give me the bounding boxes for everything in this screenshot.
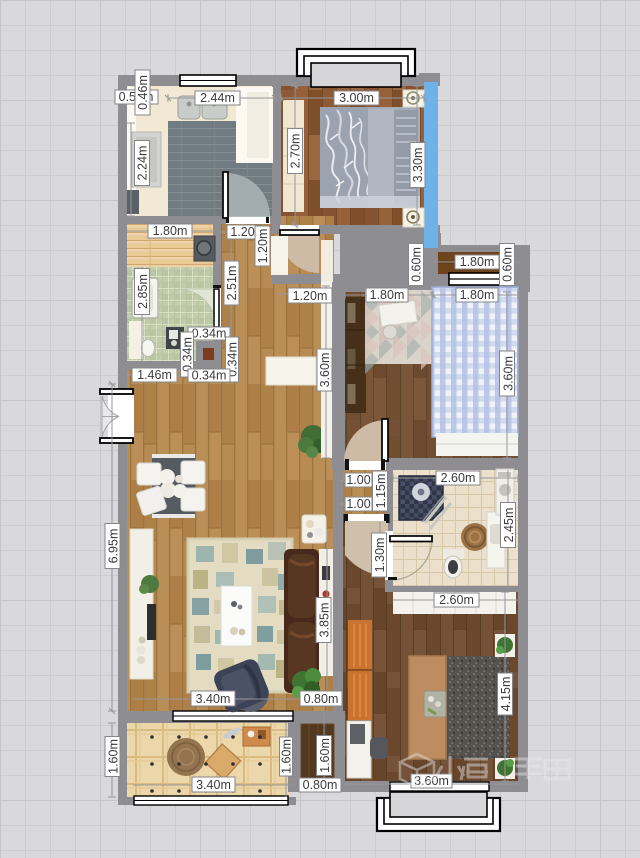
svg-text:2.44m: 2.44m (200, 91, 235, 105)
svg-text:3.30m: 3.30m (411, 148, 425, 183)
svg-text:0.46m: 0.46m (136, 75, 150, 110)
svg-text:0.80m: 0.80m (303, 778, 338, 792)
svg-text:2.24m: 2.24m (136, 146, 150, 181)
svg-text:1.80m: 1.80m (370, 288, 405, 302)
svg-text:1.60m: 1.60m (318, 738, 332, 773)
svg-text:0.34m: 0.34m (192, 327, 227, 341)
svg-text:1.60m: 1.60m (280, 739, 294, 774)
svg-text:3.40m: 3.40m (196, 778, 231, 792)
svg-text:1.20m: 1.20m (256, 229, 270, 264)
svg-text:0.60m: 0.60m (501, 247, 515, 282)
svg-text:1.15m: 1.15m (374, 474, 388, 509)
svg-text:2.85m: 2.85m (136, 274, 150, 309)
svg-text:6.95m: 6.95m (107, 529, 121, 564)
svg-text:1.00: 1.00 (346, 497, 370, 511)
svg-text:0.80m: 0.80m (304, 692, 339, 706)
svg-text:2.51m: 2.51m (225, 266, 239, 301)
svg-text:1.20m: 1.20m (293, 289, 328, 303)
svg-text:1.00: 1.00 (346, 473, 370, 487)
svg-text:1.20: 1.20 (230, 225, 254, 239)
svg-text:0.34m: 0.34m (181, 337, 195, 372)
svg-text:2.45m: 2.45m (502, 508, 516, 543)
svg-text:3.00m: 3.00m (339, 91, 374, 105)
svg-text:0.34m: 0.34m (192, 369, 227, 383)
svg-text:1.80m: 1.80m (460, 288, 495, 302)
svg-text:3.85m: 3.85m (318, 603, 332, 638)
svg-text:1.30m: 1.30m (373, 538, 387, 573)
svg-text:1.60m: 1.60m (107, 739, 121, 774)
svg-text:2.60m: 2.60m (441, 471, 476, 485)
svg-text:1.46m: 1.46m (137, 368, 172, 382)
svg-text:3.60m: 3.60m (502, 356, 516, 391)
svg-text:3.40m: 3.40m (196, 692, 231, 706)
svg-text:1.80m: 1.80m (460, 255, 495, 269)
svg-text:1.80m: 1.80m (153, 224, 188, 238)
svg-text:4.15m: 4.15m (499, 677, 513, 712)
svg-text:2.60m: 2.60m (439, 593, 474, 607)
svg-text:3.60m: 3.60m (318, 353, 332, 388)
svg-text:2.70m: 2.70m (289, 134, 303, 169)
svg-text:0.60m: 0.60m (410, 247, 424, 282)
